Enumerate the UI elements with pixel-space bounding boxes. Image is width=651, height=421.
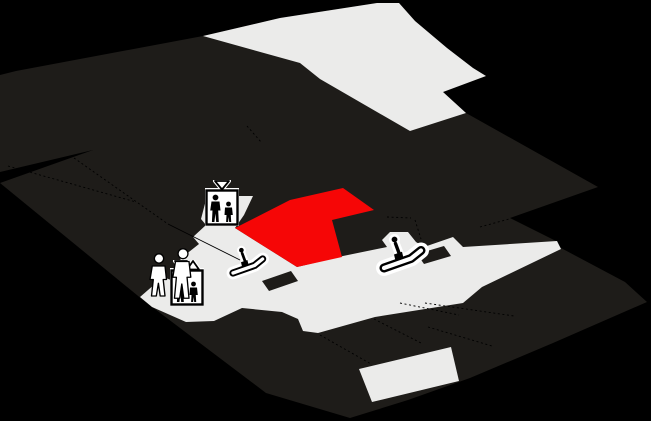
map-shapes-layer (0, 3, 647, 418)
map-canvas (0, 0, 651, 421)
mall-floor-map (0, 0, 651, 421)
